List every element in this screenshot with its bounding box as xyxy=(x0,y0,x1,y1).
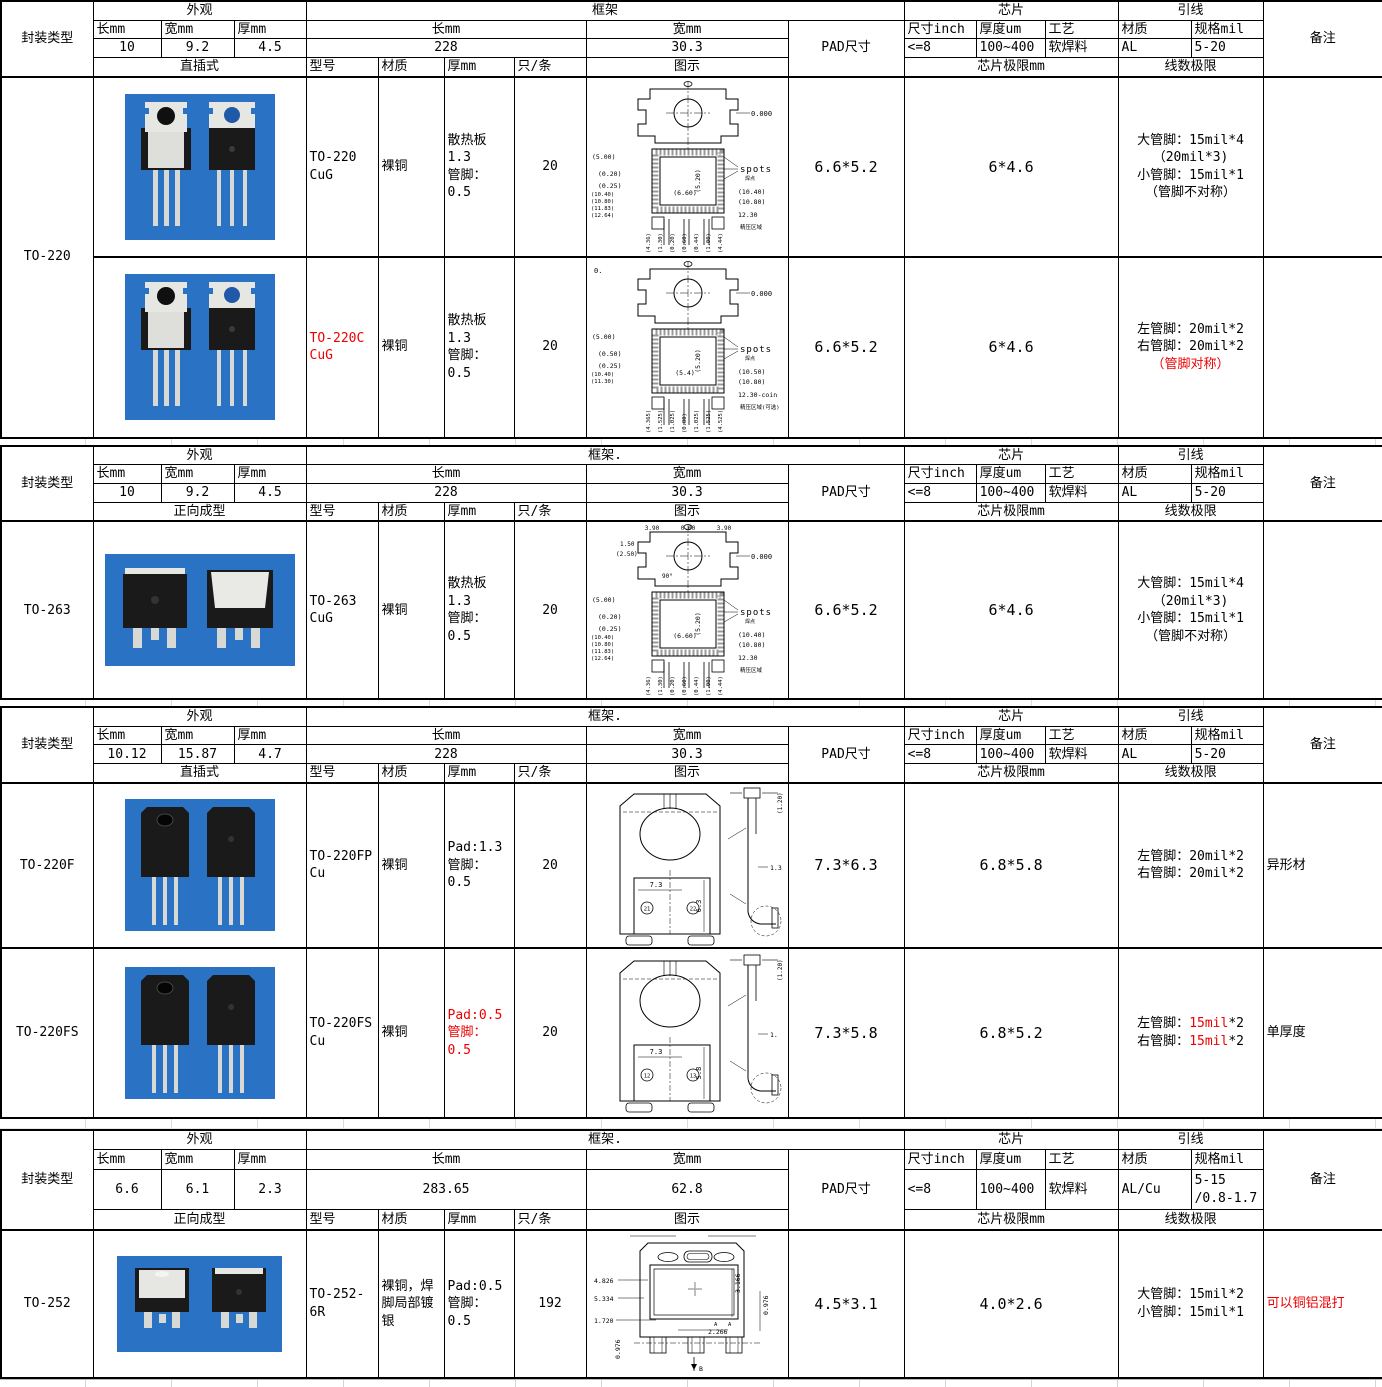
appearance-value-0[interactable]: 10 xyxy=(93,483,161,502)
pad-size-header[interactable]: PAD尺寸 xyxy=(788,20,904,77)
diagram-cell: 4.8265.3341.7203.1660.9762.2660.976AAB xyxy=(586,1230,788,1378)
remark-header[interactable]: 备注 xyxy=(1263,1,1382,77)
svg-text:0.000: 0.000 xyxy=(751,553,772,561)
cell-remark[interactable]: 可以铜铝混打 xyxy=(1263,1230,1382,1378)
appearance-col-1[interactable]: 宽mm xyxy=(161,465,234,484)
chip-value-2[interactable]: 软焊料 xyxy=(1045,1170,1118,1210)
appearance-col-2[interactable]: 厚mm xyxy=(234,1150,306,1170)
col-label-3[interactable]: 只/条 xyxy=(514,764,586,783)
appearance-col-2[interactable]: 厚mm xyxy=(234,465,306,484)
frame-wid-label[interactable]: 宽mm xyxy=(586,726,788,745)
wire-limit-line: （管脚不对称） xyxy=(1122,628,1260,646)
svg-text:3.166: 3.166 xyxy=(734,1273,742,1293)
sheet-bottom-strip xyxy=(0,1379,1382,1387)
remark-header[interactable]: 备注 xyxy=(1263,707,1382,783)
lead-col-0[interactable]: 材质 xyxy=(1118,726,1191,745)
appearance-col-0[interactable]: 长mm xyxy=(93,726,161,745)
frame-title[interactable]: 框架 xyxy=(306,1,904,20)
to252-photo xyxy=(117,1256,282,1352)
cell-qty[interactable]: 20 xyxy=(514,77,586,257)
svg-text:(1.025): (1.025) xyxy=(670,410,676,433)
svg-text:(4.44): (4.44) xyxy=(718,676,724,696)
col-label-2[interactable]: 厚mm xyxy=(444,58,514,77)
mount-type-label[interactable]: 正向成型 xyxy=(93,1210,306,1230)
svg-text:(11.30): (11.30) xyxy=(591,379,614,385)
remark-header[interactable]: 备注 xyxy=(1263,1130,1382,1230)
chip-value-0[interactable]: <=8 xyxy=(904,745,976,764)
svg-text:(0.60): (0.60) xyxy=(682,676,688,696)
col-label-4[interactable]: 图示 xyxy=(586,1210,788,1230)
col-label-0[interactable]: 型号 xyxy=(306,502,378,521)
frame-len-value[interactable]: 283.65 xyxy=(306,1170,586,1210)
frame-title[interactable]: 框架. xyxy=(306,1130,904,1150)
lead-value-1[interactable]: 5-20 xyxy=(1191,745,1263,764)
cell-pad-size[interactable]: 7.3*5.8 xyxy=(788,948,904,1118)
cell-thickness[interactable]: Pad:0.5 管脚： 0.5 xyxy=(444,948,514,1118)
cell-remark[interactable] xyxy=(1263,257,1382,438)
spec-table-to-252: 封装类型外观框架.芯片引线备注长mm宽mm厚mm长mm宽mmPAD尺寸尺寸inc… xyxy=(0,1129,1382,1379)
svg-text:7.3: 7.3 xyxy=(649,1048,662,1056)
cell-material[interactable]: 裸铜 xyxy=(378,783,444,948)
photo-cell xyxy=(93,257,306,438)
svg-text:(10.40): (10.40) xyxy=(738,631,765,639)
cell-chip-limit[interactable]: 6.8*5.2 xyxy=(904,948,1118,1118)
wire-limit-line: 右管脚：20mil*2 xyxy=(1122,338,1260,356)
cell-chip-limit[interactable]: 6*4.6 xyxy=(904,521,1118,699)
wire-limit-line: 右管脚：15mil*2 xyxy=(1122,1033,1260,1051)
frame-len-value[interactable]: 228 xyxy=(306,483,586,502)
chip-title[interactable]: 芯片 xyxy=(904,707,1118,726)
wire-limit-line: 左管脚：20mil*2 xyxy=(1122,321,1260,339)
frame-wid-label[interactable]: 宽mm xyxy=(586,465,788,484)
remark-header[interactable]: 备注 xyxy=(1263,446,1382,522)
chip-value-2[interactable]: 软焊料 xyxy=(1045,483,1118,502)
col-label-3[interactable]: 只/条 xyxy=(514,502,586,521)
pad-size-header[interactable]: PAD尺寸 xyxy=(788,1150,904,1230)
wire-limit-header[interactable]: 线数极限 xyxy=(1118,1210,1263,1230)
cell-wire-limit[interactable]: 左管脚：20mil*2右管脚：20mil*2 xyxy=(1118,783,1263,948)
cell-qty[interactable]: 20 xyxy=(514,783,586,948)
col-label-1[interactable]: 材质 xyxy=(378,764,444,783)
svg-text:(1.30): (1.30) xyxy=(658,676,664,696)
svg-text:精压区域: 精压区域 xyxy=(740,666,763,674)
frame-wid-value[interactable]: 30.3 xyxy=(586,39,788,58)
appearance-col-0[interactable]: 长mm xyxy=(93,20,161,39)
cell-chip-limit[interactable]: 6*4.6 xyxy=(904,257,1118,438)
package-type-cell[interactable]: TO-263 xyxy=(1,521,93,699)
wire-limit-line: （管脚对称） xyxy=(1122,356,1260,374)
svg-text:(0.20): (0.20) xyxy=(598,170,621,178)
col-label-2[interactable]: 厚mm xyxy=(444,502,514,521)
mount-type-label[interactable]: 正向成型 xyxy=(93,502,306,521)
chip-limit-header[interactable]: 芯片极限mm xyxy=(904,764,1118,783)
cell-thickness[interactable]: 散热板 1.3 管脚： 0.5 xyxy=(444,77,514,257)
chip-title[interactable]: 芯片 xyxy=(904,1,1118,20)
svg-text:(0.20): (0.20) xyxy=(670,233,676,253)
appearance-title[interactable]: 外观 xyxy=(93,1,306,20)
chip-value-0[interactable]: <=8 xyxy=(904,483,976,502)
package-type-cell[interactable]: TO-220 xyxy=(1,77,93,438)
svg-text:(1.00): (1.00) xyxy=(706,233,712,253)
to220f-photo xyxy=(125,967,275,1099)
diagram-cell: (5.00)(0.20)(0.25)(6.60)(5.20)0.000spots… xyxy=(586,77,788,257)
cell-thickness[interactable]: 散热板 1.3 管脚： 0.5 xyxy=(444,257,514,438)
appearance-value-1[interactable]: 15.87 xyxy=(161,745,234,764)
lead-value-1[interactable]: 5-20 xyxy=(1191,39,1263,58)
package-type-header[interactable]: 封装类型 xyxy=(1,1,93,77)
wire-limit-line: 大管脚：15mil*2 xyxy=(1122,1286,1260,1304)
cell-model[interactable]: TO-220C CuG xyxy=(306,257,378,438)
photo-cell xyxy=(93,1230,306,1378)
diagram-to220b: 0.(5.00)(0.50)(0.25)(5.4)(5.20)0.000spot… xyxy=(590,259,788,435)
svg-text:(0.25): (0.25) xyxy=(598,362,621,370)
svg-text:(10.50): (10.50) xyxy=(738,368,765,376)
chip-col-2[interactable]: 工艺 xyxy=(1045,465,1118,484)
svg-text:22: 22 xyxy=(689,906,696,912)
col-label-0[interactable]: 型号 xyxy=(306,1210,378,1230)
chip-col-1[interactable]: 厚度um xyxy=(976,1150,1045,1170)
lead-title[interactable]: 引线 xyxy=(1118,1130,1263,1150)
svg-text:(10.80): (10.80) xyxy=(738,378,765,386)
svg-text:0.: 0. xyxy=(594,267,602,275)
svg-text:(10.40): (10.40) xyxy=(738,188,765,196)
diagram-to220a: (5.00)(0.20)(0.25)(6.60)(5.20)0.000spots… xyxy=(590,79,788,255)
frame-wid-label[interactable]: 宽mm xyxy=(586,1150,788,1170)
svg-text:(4.36): (4.36) xyxy=(646,676,652,696)
chip-col-2[interactable]: 工艺 xyxy=(1045,726,1118,745)
cell-material[interactable]: 裸铜 xyxy=(378,521,444,699)
cell-remark[interactable]: 单厚度 xyxy=(1263,948,1382,1118)
cell-qty[interactable]: 20 xyxy=(514,521,586,699)
col-label-4[interactable]: 图示 xyxy=(586,502,788,521)
cell-wire-limit[interactable]: 左管脚：15mil*2右管脚：15mil*2 xyxy=(1118,948,1263,1118)
cell-pad-size[interactable]: 6.6*5.2 xyxy=(788,77,904,257)
svg-text:精压区域: 精压区域 xyxy=(740,223,763,231)
col-label-1[interactable]: 材质 xyxy=(378,502,444,521)
svg-text:(5.20): (5.20) xyxy=(694,169,702,192)
appearance-col-0[interactable]: 长mm xyxy=(93,1150,161,1170)
cell-pad-size[interactable]: 6.6*5.2 xyxy=(788,257,904,438)
chip-title[interactable]: 芯片 xyxy=(904,1130,1118,1150)
svg-text:spots: spots xyxy=(740,345,772,355)
lead-value-0[interactable]: AL/Cu xyxy=(1118,1170,1191,1210)
svg-text:(2.50): (2.50) xyxy=(616,551,638,558)
wire-limit-line: 左管脚：15mil*2 xyxy=(1122,1015,1260,1033)
chip-title[interactable]: 芯片 xyxy=(904,446,1118,465)
frame-len-label[interactable]: 长mm xyxy=(306,726,586,745)
diagram-cell: 0.(5.00)(0.50)(0.25)(5.4)(5.20)0.000spot… xyxy=(586,257,788,438)
svg-text:(10.40): (10.40) xyxy=(591,372,614,378)
diagram-cell: 7.35.81213(1.20)1. xyxy=(586,948,788,1118)
svg-text:5.334: 5.334 xyxy=(594,1295,614,1303)
svg-text:12: 12 xyxy=(643,1074,650,1080)
chip-value-2[interactable]: 软焊料 xyxy=(1045,39,1118,58)
spreadsheet: 封装类型外观框架芯片引线备注长mm宽mm厚mm长mm宽mmPAD尺寸尺寸inch… xyxy=(0,0,1382,1387)
to220-photo xyxy=(125,274,275,420)
svg-text:0.00: 0.00 xyxy=(680,525,695,532)
package-type-header[interactable]: 封装类型 xyxy=(1,707,93,783)
cell-chip-limit[interactable]: 6*4.6 xyxy=(904,77,1118,257)
lead-col-0[interactable]: 材质 xyxy=(1118,20,1191,39)
photo-cell xyxy=(93,783,306,948)
svg-text:13: 13 xyxy=(689,1074,696,1080)
lead-value-1[interactable]: 5-15 /0.8-1.7 xyxy=(1191,1170,1263,1210)
appearance-col-1[interactable]: 宽mm xyxy=(161,726,234,745)
svg-text:焊点: 焊点 xyxy=(745,175,755,182)
appearance-value-2[interactable]: 4.5 xyxy=(234,483,306,502)
lead-title[interactable]: 引线 xyxy=(1118,707,1263,726)
spec-table-to-220: 封装类型外观框架芯片引线备注长mm宽mm厚mm长mm宽mmPAD尺寸尺寸inch… xyxy=(0,0,1382,439)
svg-text:(0.20): (0.20) xyxy=(670,676,676,696)
appearance-value-0[interactable]: 10.12 xyxy=(93,745,161,764)
cell-material[interactable]: 裸铜 xyxy=(378,257,444,438)
cell-model[interactable]: TO-263 CuG xyxy=(306,521,378,699)
col-label-0[interactable]: 型号 xyxy=(306,764,378,783)
col-label-1[interactable]: 材质 xyxy=(378,1210,444,1230)
chip-col-0[interactable]: 尺寸inch xyxy=(904,1150,976,1170)
col-label-2[interactable]: 厚mm xyxy=(444,1210,514,1230)
lead-col-0[interactable]: 材质 xyxy=(1118,465,1191,484)
mount-type-label[interactable]: 直插式 xyxy=(93,764,306,783)
cell-wire-limit[interactable]: 大管脚：15mil*4（20mil*3)小管脚：15mil*1（管脚不对称） xyxy=(1118,521,1263,699)
cell-chip-limit[interactable]: 4.0*2.6 xyxy=(904,1230,1118,1378)
lead-value-1[interactable]: 5-20 xyxy=(1191,483,1263,502)
appearance-col-1[interactable]: 宽mm xyxy=(161,20,234,39)
lead-title[interactable]: 引线 xyxy=(1118,1,1263,20)
lead-col-1[interactable]: 规格mil xyxy=(1191,1150,1263,1170)
chip-value-2[interactable]: 软焊料 xyxy=(1045,745,1118,764)
cell-qty[interactable]: 192 xyxy=(514,1230,586,1378)
svg-text:12.30: 12.30 xyxy=(738,211,758,219)
chip-limit-header[interactable]: 芯片极限mm xyxy=(904,58,1118,77)
svg-text:(10.40): (10.40) xyxy=(591,635,614,641)
lead-col-1[interactable]: 规格mil xyxy=(1191,465,1263,484)
svg-text:spots: spots xyxy=(740,608,772,618)
frame-len-label[interactable]: 长mm xyxy=(306,20,586,39)
svg-text:(1.20): (1.20) xyxy=(777,792,784,814)
cell-remark[interactable]: 异形材 xyxy=(1263,783,1382,948)
svg-text:(10.80): (10.80) xyxy=(738,198,765,206)
svg-text:(5.00): (5.00) xyxy=(592,333,615,341)
frame-wid-label[interactable]: 宽mm xyxy=(586,20,788,39)
appearance-value-1[interactable]: 6.1 xyxy=(161,1170,234,1210)
col-label-4[interactable]: 图示 xyxy=(586,58,788,77)
frame-wid-value[interactable]: 30.3 xyxy=(586,483,788,502)
chip-col-1[interactable]: 厚度um xyxy=(976,726,1045,745)
cell-thickness[interactable]: 散热板 1.3 管脚： 0.5 xyxy=(444,521,514,699)
wire-limit-header[interactable]: 线数极限 xyxy=(1118,502,1263,521)
frame-title[interactable]: 框架. xyxy=(306,707,904,726)
frame-title[interactable]: 框架. xyxy=(306,446,904,465)
wire-limit-line: 大管脚：15mil*4 xyxy=(1122,132,1260,150)
photo-cell xyxy=(93,77,306,257)
svg-text:(5.00): (5.00) xyxy=(592,596,615,604)
svg-text:(0.25): (0.25) xyxy=(598,625,621,633)
appearance-title[interactable]: 外观 xyxy=(93,446,306,465)
svg-text:(4.525): (4.525) xyxy=(718,410,724,433)
lead-col-1[interactable]: 规格mil xyxy=(1191,20,1263,39)
chip-col-2[interactable]: 工艺 xyxy=(1045,20,1118,39)
svg-text:(0.20): (0.20) xyxy=(598,613,621,621)
appearance-col-2[interactable]: 厚mm xyxy=(234,726,306,745)
appearance-col-1[interactable]: 宽mm xyxy=(161,1150,234,1170)
svg-text:(5.00): (5.00) xyxy=(592,153,615,161)
wire-limit-line: 大管脚：15mil*4 xyxy=(1122,575,1260,593)
chip-value-1[interactable]: 100~400 xyxy=(976,483,1045,502)
cell-remark[interactable] xyxy=(1263,77,1382,257)
svg-text:(4.44): (4.44) xyxy=(718,233,724,253)
svg-text:(1.20): (1.20) xyxy=(777,960,784,982)
frame-len-label[interactable]: 长mm xyxy=(306,1150,586,1170)
mount-type-label[interactable]: 直插式 xyxy=(93,58,306,77)
chip-value-0[interactable]: <=8 xyxy=(904,1170,976,1210)
col-label-0[interactable]: 型号 xyxy=(306,58,378,77)
svg-text:(10.80): (10.80) xyxy=(738,641,765,649)
diagram-to220f: 7.36.32122(1.20)1.3 xyxy=(590,784,788,947)
chip-limit-header[interactable]: 芯片极限mm xyxy=(904,502,1118,521)
cell-model[interactable]: TO-252-6R xyxy=(306,1230,378,1378)
photo-cell xyxy=(93,521,306,699)
package-type-cell[interactable]: TO-220F xyxy=(1,783,93,948)
frame-len-value[interactable]: 228 xyxy=(306,745,586,764)
svg-text:(5.20): (5.20) xyxy=(694,349,702,372)
appearance-value-2[interactable]: 4.5 xyxy=(234,39,306,58)
cell-material[interactable]: 裸铜，焊脚局部镀银 xyxy=(378,1230,444,1378)
chip-value-0[interactable]: <=8 xyxy=(904,39,976,58)
svg-text:3.90: 3.90 xyxy=(644,525,659,532)
appearance-value-1[interactable]: 9.2 xyxy=(161,483,234,502)
chip-col-0[interactable]: 尺寸inch xyxy=(904,465,976,484)
frame-wid-value[interactable]: 62.8 xyxy=(586,1170,788,1210)
svg-text:(1.00): (1.00) xyxy=(706,676,712,696)
lead-value-0[interactable]: AL xyxy=(1118,483,1191,502)
cell-qty[interactable]: 20 xyxy=(514,948,586,1118)
cell-qty[interactable]: 20 xyxy=(514,257,586,438)
lead-title[interactable]: 引线 xyxy=(1118,446,1263,465)
cell-model[interactable]: TO-220FS Cu xyxy=(306,948,378,1118)
spec-table-to-263: 封装类型外观框架.芯片引线备注长mm宽mm厚mm长mm宽mmPAD尺寸尺寸inc… xyxy=(0,445,1382,701)
svg-text:90°: 90° xyxy=(662,573,673,580)
cell-model[interactable]: TO-220 CuG xyxy=(306,77,378,257)
cell-material[interactable]: 裸铜 xyxy=(378,948,444,1118)
wire-limit-line: 左管脚：20mil*2 xyxy=(1122,848,1260,866)
svg-text:3.90: 3.90 xyxy=(716,525,731,532)
svg-text:spots: spots xyxy=(740,165,772,175)
frame-wid-value[interactable]: 30.3 xyxy=(586,745,788,764)
pad-size-header[interactable]: PAD尺寸 xyxy=(788,465,904,522)
appearance-value-2[interactable]: 2.3 xyxy=(234,1170,306,1210)
svg-text:(5.20): (5.20) xyxy=(694,613,702,636)
svg-text:焊点: 焊点 xyxy=(745,355,755,362)
svg-text:2.266: 2.266 xyxy=(708,1328,728,1336)
chip-value-1[interactable]: 100~400 xyxy=(976,39,1045,58)
svg-text:(1.025): (1.025) xyxy=(694,410,700,433)
appearance-value-1[interactable]: 9.2 xyxy=(161,39,234,58)
cell-pad-size[interactable]: 7.3*6.3 xyxy=(788,783,904,948)
appearance-col-0[interactable]: 长mm xyxy=(93,465,161,484)
wire-limit-line: 小管脚：15mil*1 xyxy=(1122,610,1260,628)
chip-col-1[interactable]: 厚度um xyxy=(976,465,1045,484)
svg-text:(10.80): (10.80) xyxy=(591,642,614,648)
appearance-value-2[interactable]: 4.7 xyxy=(234,745,306,764)
chip-col-0[interactable]: 尺寸inch xyxy=(904,20,976,39)
chip-limit-header[interactable]: 芯片极限mm xyxy=(904,1210,1118,1230)
package-type-header[interactable]: 封装类型 xyxy=(1,1130,93,1230)
wire-limit-header[interactable]: 线数极限 xyxy=(1118,764,1263,783)
diagram-to263: 3.900.003.901.50(2.50)90°(5.00)(0.20)(0.… xyxy=(590,522,788,698)
appearance-title[interactable]: 外观 xyxy=(93,707,306,726)
chip-col-1[interactable]: 厚度um xyxy=(976,20,1045,39)
svg-text:0.000: 0.000 xyxy=(751,110,772,118)
col-label-3[interactable]: 只/条 xyxy=(514,1210,586,1230)
cell-thickness[interactable]: Pad:1.3 管脚： 0.5 xyxy=(444,783,514,948)
cell-material[interactable]: 裸铜 xyxy=(378,77,444,257)
col-label-3[interactable]: 只/条 xyxy=(514,58,586,77)
appearance-col-2[interactable]: 厚mm xyxy=(234,20,306,39)
cell-wire-limit[interactable]: 大管脚：15mil*4（20mil*3)小管脚：15mil*1（管脚不对称） xyxy=(1118,77,1263,257)
cell-model[interactable]: TO-220FP Cu xyxy=(306,783,378,948)
wire-limit-line: 右管脚：20mil*2 xyxy=(1122,865,1260,883)
pad-size-header[interactable]: PAD尺寸 xyxy=(788,726,904,783)
cell-wire-limit[interactable]: 大管脚：15mil*2小管脚：15mil*1 xyxy=(1118,1230,1263,1378)
svg-text:1.3: 1.3 xyxy=(770,864,782,872)
cell-chip-limit[interactable]: 6.8*5.8 xyxy=(904,783,1118,948)
svg-text:(0.60): (0.60) xyxy=(682,233,688,253)
col-label-4[interactable]: 图示 xyxy=(586,764,788,783)
chip-value-1[interactable]: 100~400 xyxy=(976,1170,1045,1210)
diagram-to220fs: 7.35.81213(1.20)1. xyxy=(590,951,788,1114)
svg-text:(4.36): (4.36) xyxy=(646,233,652,253)
lead-col-0[interactable]: 材质 xyxy=(1118,1150,1191,1170)
cell-pad-size[interactable]: 6.6*5.2 xyxy=(788,521,904,699)
svg-text:(1.30): (1.30) xyxy=(658,233,664,253)
svg-text:12.30: 12.30 xyxy=(738,654,758,662)
cell-remark[interactable] xyxy=(1263,521,1382,699)
svg-text:12.30-coin: 12.30-coin xyxy=(738,391,777,399)
chip-value-1[interactable]: 100~400 xyxy=(976,745,1045,764)
appearance-value-0[interactable]: 10 xyxy=(93,39,161,58)
cell-pad-size[interactable]: 4.5*3.1 xyxy=(788,1230,904,1378)
svg-text:(10.80): (10.80) xyxy=(591,199,614,205)
appearance-title[interactable]: 外观 xyxy=(93,1130,306,1150)
lead-value-0[interactable]: AL xyxy=(1118,745,1191,764)
appearance-value-0[interactable]: 6.6 xyxy=(93,1170,161,1210)
package-type-header[interactable]: 封装类型 xyxy=(1,446,93,522)
cell-thickness[interactable]: Pad:0.5 管脚： 0.5 xyxy=(444,1230,514,1378)
chip-col-2[interactable]: 工艺 xyxy=(1045,1150,1118,1170)
svg-text:0.976: 0.976 xyxy=(614,1339,622,1359)
package-type-cell[interactable]: TO-220FS xyxy=(1,948,93,1118)
diagram-to252: 4.8265.3341.7203.1660.9762.2660.976AAB xyxy=(590,1231,788,1377)
svg-text:焊点: 焊点 xyxy=(745,618,755,625)
frame-len-value[interactable]: 228 xyxy=(306,39,586,58)
cell-wire-limit[interactable]: 左管脚：20mil*2右管脚：20mil*2（管脚对称） xyxy=(1118,257,1263,438)
wire-limit-line: 小管脚：15mil*1 xyxy=(1122,167,1260,185)
frame-len-label[interactable]: 长mm xyxy=(306,465,586,484)
package-type-cell[interactable]: TO-252 xyxy=(1,1230,93,1378)
svg-text:(5.4): (5.4) xyxy=(675,369,695,377)
wire-limit-header[interactable]: 线数极限 xyxy=(1118,58,1263,77)
svg-text:1.720: 1.720 xyxy=(594,1317,614,1325)
col-label-2[interactable]: 厚mm xyxy=(444,764,514,783)
chip-col-0[interactable]: 尺寸inch xyxy=(904,726,976,745)
lead-value-0[interactable]: AL xyxy=(1118,39,1191,58)
lead-col-1[interactable]: 规格mil xyxy=(1191,726,1263,745)
col-label-1[interactable]: 材质 xyxy=(378,58,444,77)
to263-photo xyxy=(105,554,295,666)
svg-text:0.000: 0.000 xyxy=(751,290,772,298)
svg-text:精压区域(可选): 精压区域(可选) xyxy=(740,403,780,411)
